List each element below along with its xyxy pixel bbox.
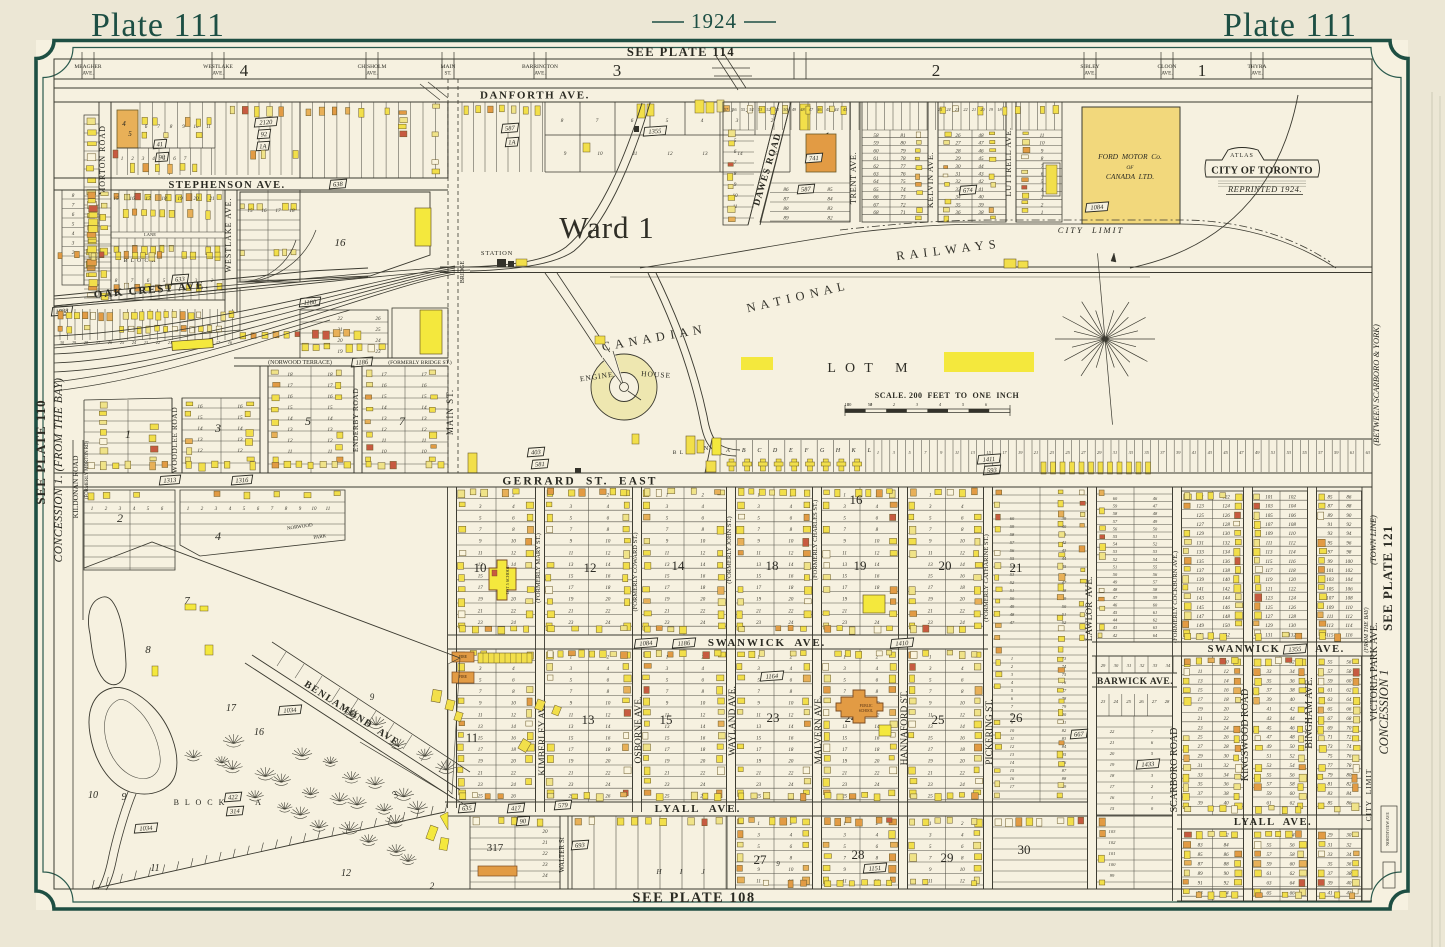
- svg-text:11: 11: [928, 880, 933, 885]
- svg-text:FIRE: FIRE: [459, 675, 468, 679]
- svg-text:10: 10: [511, 540, 517, 545]
- svg-text:73: 73: [900, 195, 906, 201]
- svg-text:19: 19: [478, 760, 484, 765]
- svg-text:19: 19: [665, 760, 671, 765]
- svg-text:7: 7: [399, 414, 406, 428]
- svg-text:21: 21: [665, 771, 670, 776]
- svg-text:(FORMERLY MARY ST.): (FORMERLY MARY ST.): [535, 533, 542, 603]
- svg-text:417: 417: [511, 805, 522, 813]
- svg-text:19: 19: [756, 760, 762, 765]
- svg-text:21: 21: [568, 609, 573, 614]
- svg-text:ST.: ST.: [445, 71, 452, 77]
- svg-text:667: 667: [1074, 731, 1085, 739]
- svg-text:9: 9: [370, 692, 375, 702]
- svg-text:5: 5: [163, 156, 166, 162]
- svg-text:112: 112: [1289, 541, 1297, 546]
- svg-text:22: 22: [605, 609, 611, 614]
- svg-text:118: 118: [1289, 569, 1297, 574]
- svg-text:20: 20: [193, 196, 199, 202]
- svg-text:29: 29: [941, 850, 954, 865]
- svg-text:91: 91: [1328, 523, 1333, 528]
- svg-text:6: 6: [173, 156, 176, 162]
- svg-text:38: 38: [1290, 689, 1296, 694]
- svg-text:30: 30: [955, 164, 961, 170]
- svg-text:24: 24: [700, 621, 706, 626]
- svg-text:SCALE. 200 FEET TO ONE INC: SCALE. 200 FEET TO ONE INCH: [875, 391, 1020, 400]
- svg-text:26: 26: [1224, 736, 1230, 741]
- svg-text:35: 35: [1267, 679, 1273, 684]
- svg-text:51: 51: [775, 107, 779, 112]
- svg-text:1: 1: [1151, 795, 1153, 800]
- svg-text:66: 66: [873, 195, 879, 201]
- svg-text:1: 1: [929, 493, 932, 498]
- svg-text:65: 65: [873, 187, 879, 193]
- svg-text:14: 14: [788, 563, 794, 568]
- svg-text:17: 17: [928, 586, 934, 591]
- svg-text:12: 12: [605, 713, 611, 718]
- svg-text:19: 19: [928, 760, 934, 765]
- svg-text:31: 31: [1198, 764, 1203, 769]
- svg-text:55: 55: [1267, 773, 1273, 778]
- svg-text:(FROM THE BAY): (FROM THE BAY): [1363, 607, 1370, 652]
- svg-text:32: 32: [1140, 663, 1145, 668]
- svg-text:126: 126: [1222, 514, 1230, 519]
- svg-text:38: 38: [1224, 792, 1230, 797]
- svg-text:27: 27: [754, 852, 768, 867]
- svg-text:22: 22: [963, 107, 967, 112]
- svg-text:8: 8: [72, 193, 75, 199]
- svg-text:56: 56: [1346, 661, 1352, 666]
- svg-text:37: 37: [1267, 689, 1273, 694]
- svg-text:16: 16: [237, 404, 243, 410]
- svg-text:31: 31: [1328, 843, 1333, 848]
- svg-text:70: 70: [1346, 726, 1352, 731]
- svg-text:AVE.: AVE.: [1315, 644, 1344, 655]
- svg-text:20: 20: [511, 760, 517, 765]
- svg-text:124: 124: [1222, 505, 1230, 510]
- svg-text:62: 62: [873, 164, 879, 170]
- svg-text:16: 16: [788, 737, 794, 742]
- svg-text:2120: 2120: [259, 119, 273, 127]
- svg-text:15: 15: [327, 405, 333, 411]
- svg-text:17: 17: [478, 748, 484, 753]
- svg-text:25: 25: [1126, 699, 1131, 704]
- svg-text:16: 16: [960, 737, 966, 742]
- svg-text:674: 674: [963, 187, 974, 195]
- svg-text:14: 14: [1224, 679, 1230, 684]
- svg-text:16: 16: [327, 394, 333, 400]
- svg-text:83: 83: [1328, 792, 1334, 797]
- svg-text:89: 89: [783, 216, 789, 222]
- svg-text:Plate 111: Plate 111: [91, 7, 225, 44]
- svg-text:35: 35: [955, 202, 961, 208]
- svg-text:112: 112: [1345, 615, 1353, 620]
- svg-text:22: 22: [542, 851, 548, 857]
- svg-text:80: 80: [1346, 773, 1352, 778]
- svg-text:CITY LIMIT: CITY LIMIT: [1058, 225, 1124, 235]
- svg-text:14: 14: [874, 563, 880, 568]
- svg-text:91: 91: [1198, 882, 1203, 887]
- svg-text:58: 58: [873, 133, 879, 139]
- svg-text:12: 12: [960, 713, 966, 718]
- svg-text:43: 43: [843, 107, 847, 112]
- svg-text:103: 103: [1265, 505, 1273, 510]
- svg-text:LYALL AVE.: LYALL AVE.: [655, 803, 742, 815]
- svg-text:7: 7: [596, 118, 599, 124]
- svg-text:80: 80: [900, 141, 906, 147]
- svg-text:63: 63: [1328, 698, 1334, 703]
- svg-text:26: 26: [375, 316, 381, 322]
- svg-text:26: 26: [605, 795, 611, 800]
- svg-text:22: 22: [788, 609, 794, 614]
- svg-text:47: 47: [978, 140, 984, 147]
- svg-text:108: 108: [1288, 523, 1296, 528]
- svg-text:18: 18: [605, 586, 611, 591]
- svg-text:13: 13: [478, 725, 484, 730]
- svg-text:63: 63: [873, 172, 879, 178]
- svg-text:19: 19: [478, 598, 484, 603]
- svg-text:60: 60: [1346, 679, 1352, 684]
- svg-text:KELVIN AVE.: KELVIN AVE.: [925, 152, 935, 209]
- svg-text:60: 60: [873, 148, 879, 154]
- svg-text:59: 59: [873, 141, 879, 147]
- svg-text:11: 11: [756, 551, 761, 556]
- svg-text:24: 24: [375, 337, 381, 344]
- svg-text:MAIN: MAIN: [441, 64, 456, 70]
- svg-text:15: 15: [842, 737, 848, 742]
- svg-text:59: 59: [1267, 863, 1273, 868]
- svg-text:61: 61: [1153, 610, 1157, 615]
- svg-text:48: 48: [978, 132, 984, 139]
- svg-text:62: 62: [1290, 802, 1296, 807]
- svg-text:6: 6: [145, 124, 148, 130]
- svg-text:12: 12: [874, 551, 880, 556]
- svg-text:14: 14: [327, 415, 333, 422]
- svg-text:85: 85: [1328, 802, 1334, 807]
- svg-text:17: 17: [756, 748, 762, 753]
- svg-text:41: 41: [1192, 450, 1196, 455]
- svg-text:7: 7: [184, 156, 187, 162]
- svg-text:11: 11: [1198, 670, 1203, 675]
- svg-text:19: 19: [1198, 708, 1204, 713]
- svg-text:18: 18: [766, 558, 779, 573]
- svg-text:44: 44: [978, 163, 984, 170]
- svg-text:58: 58: [1290, 853, 1296, 858]
- svg-text:14: 14: [788, 725, 794, 730]
- svg-text:15: 15: [756, 737, 762, 742]
- svg-text:17: 17: [568, 586, 574, 591]
- svg-text:109: 109: [1326, 606, 1334, 611]
- svg-text:9: 9: [182, 124, 185, 130]
- svg-text:71: 71: [900, 210, 906, 216]
- svg-text:89: 89: [1328, 514, 1334, 519]
- svg-text:62: 62: [1290, 872, 1296, 877]
- svg-text:13: 13: [756, 563, 762, 568]
- svg-text:59: 59: [1267, 792, 1273, 797]
- svg-text:4: 4: [215, 529, 221, 543]
- svg-text:22: 22: [1110, 729, 1115, 734]
- svg-text:1: 1: [666, 493, 669, 498]
- svg-text:2: 2: [932, 61, 941, 80]
- svg-text:14: 14: [960, 725, 966, 730]
- svg-text:117: 117: [1265, 569, 1273, 574]
- svg-text:14: 14: [672, 558, 686, 573]
- svg-text:10: 10: [960, 702, 966, 707]
- svg-text:24: 24: [1224, 726, 1230, 731]
- svg-text:43: 43: [978, 171, 984, 178]
- svg-text:67: 67: [1328, 717, 1334, 722]
- svg-text:1410: 1410: [895, 640, 909, 648]
- svg-text:24: 24: [788, 783, 794, 788]
- svg-text:1034: 1034: [139, 825, 153, 833]
- svg-text:52: 52: [766, 107, 770, 112]
- svg-text:18: 18: [788, 748, 794, 753]
- svg-text:13: 13: [582, 712, 595, 727]
- svg-text:23: 23: [542, 862, 548, 868]
- svg-text:15: 15: [1198, 689, 1204, 694]
- svg-text:(FORMERLY CHARLES ST.): (FORMERLY CHARLES ST.): [812, 500, 819, 580]
- svg-text:581: 581: [535, 461, 545, 469]
- svg-text:1: 1: [757, 822, 760, 827]
- svg-text:147: 147: [1196, 615, 1204, 620]
- svg-text:13: 13: [197, 437, 203, 443]
- svg-text:83: 83: [827, 206, 833, 212]
- svg-text:15: 15: [478, 737, 484, 742]
- svg-text:1411: 1411: [982, 456, 995, 464]
- svg-text:100: 100: [845, 402, 853, 407]
- svg-text:19: 19: [337, 349, 343, 355]
- svg-text:17: 17: [1110, 784, 1115, 789]
- svg-text:84: 84: [1346, 792, 1352, 797]
- svg-text:32: 32: [1346, 843, 1352, 848]
- svg-text:LUTTRELL AVE.: LUTTRELL AVE.: [1003, 127, 1013, 196]
- svg-text:85: 85: [1328, 495, 1334, 500]
- svg-text:49: 49: [1267, 745, 1273, 750]
- svg-text:16: 16: [511, 737, 517, 742]
- svg-text:17: 17: [327, 383, 333, 389]
- svg-text:MEAGHER: MEAGHER: [74, 64, 102, 70]
- svg-text:41: 41: [156, 141, 163, 148]
- svg-text:13: 13: [702, 151, 708, 157]
- svg-text:21: 21: [928, 771, 933, 776]
- svg-text:29: 29: [1198, 755, 1204, 760]
- svg-text:1186: 1186: [355, 359, 369, 367]
- svg-text:79: 79: [1328, 773, 1334, 778]
- svg-text:15: 15: [421, 394, 427, 400]
- svg-text:23: 23: [1198, 726, 1204, 731]
- svg-text:123: 123: [1196, 505, 1204, 510]
- svg-text:132: 132: [1222, 541, 1230, 546]
- svg-text:MORTON ROAD: MORTON ROAD: [98, 125, 107, 195]
- svg-text:13: 13: [842, 563, 848, 568]
- svg-text:52: 52: [1290, 755, 1296, 760]
- svg-text:38: 38: [978, 210, 984, 216]
- svg-text:92: 92: [1224, 882, 1230, 887]
- svg-text:67: 67: [873, 202, 879, 208]
- svg-text:29: 29: [1101, 663, 1106, 668]
- svg-text:18: 18: [327, 372, 333, 378]
- svg-text:96: 96: [1346, 541, 1352, 546]
- svg-text:24: 24: [605, 783, 611, 788]
- svg-text:142: 142: [1222, 587, 1230, 592]
- svg-text:21: 21: [756, 771, 761, 776]
- svg-text:13: 13: [928, 563, 934, 568]
- svg-text:13: 13: [842, 725, 848, 730]
- svg-text:11: 11: [382, 438, 387, 444]
- svg-text:HANNAFORD ST.: HANNAFORD ST.: [900, 691, 910, 766]
- svg-text:41: 41: [1267, 708, 1272, 713]
- svg-text:61: 61: [1267, 872, 1272, 877]
- svg-text:22: 22: [960, 609, 966, 614]
- svg-text:17: 17: [665, 748, 671, 753]
- svg-text:12: 12: [511, 713, 517, 718]
- svg-text:14: 14: [960, 563, 966, 568]
- svg-text:15: 15: [247, 208, 253, 214]
- svg-text:1: 1: [929, 822, 932, 827]
- svg-text:317: 317: [487, 842, 504, 854]
- svg-text:61: 61: [873, 156, 879, 162]
- svg-text:149: 149: [1196, 624, 1204, 629]
- svg-text:741: 741: [809, 155, 819, 163]
- svg-text:12: 12: [700, 713, 706, 718]
- svg-text:24: 24: [700, 783, 706, 788]
- svg-text:12: 12: [960, 880, 966, 885]
- svg-text:23: 23: [478, 783, 484, 788]
- svg-text:LYALL AVE.: LYALL AVE.: [1234, 817, 1312, 828]
- svg-text:24: 24: [946, 107, 950, 112]
- svg-text:54: 54: [749, 107, 753, 112]
- svg-text:3: 3: [72, 241, 75, 247]
- svg-text:17: 17: [145, 196, 151, 202]
- svg-text:17: 17: [275, 208, 281, 214]
- svg-text:18: 18: [700, 748, 706, 753]
- svg-text:LANE: LANE: [144, 232, 156, 237]
- svg-text:NORTHVIEW AVE: NORTHVIEW AVE: [1385, 812, 1390, 846]
- svg-text:10: 10: [788, 540, 794, 545]
- svg-text:(FORMERLY MORTON RD): (FORMERLY MORTON RD): [85, 441, 90, 500]
- svg-text:128: 128: [1222, 523, 1230, 528]
- svg-text:1: 1: [1198, 61, 1207, 80]
- svg-text:23: 23: [1101, 699, 1106, 704]
- svg-text:16: 16: [129, 196, 135, 202]
- svg-text:65: 65: [1267, 891, 1273, 896]
- svg-text:WOODLEE ROAD: WOODLEE ROAD: [170, 407, 179, 473]
- svg-text:24: 24: [605, 621, 611, 626]
- svg-text:1: 1: [1011, 656, 1013, 661]
- svg-text:51: 51: [1010, 588, 1014, 593]
- svg-text:37: 37: [1328, 872, 1334, 877]
- svg-text:102: 102: [1288, 495, 1296, 500]
- svg-text:37: 37: [1198, 792, 1204, 797]
- svg-text:57: 57: [1267, 853, 1273, 858]
- svg-text:25: 25: [120, 340, 124, 345]
- svg-text:16: 16: [700, 737, 706, 742]
- svg-text:113: 113: [1265, 551, 1273, 556]
- svg-text:15: 15: [842, 575, 848, 580]
- svg-text:5: 5: [305, 414, 311, 428]
- svg-text:1: 1: [929, 655, 932, 660]
- svg-text:1A: 1A: [259, 143, 267, 150]
- svg-text:25: 25: [928, 795, 934, 800]
- svg-text:24: 24: [132, 340, 136, 345]
- svg-text:17: 17: [842, 586, 848, 591]
- svg-text:21: 21: [842, 609, 847, 614]
- svg-text:13: 13: [287, 427, 293, 433]
- svg-text:47: 47: [1267, 736, 1273, 741]
- svg-text:137: 137: [1196, 569, 1204, 574]
- svg-text:85: 85: [827, 187, 833, 193]
- svg-text:126: 126: [1288, 606, 1296, 611]
- svg-text:17: 17: [226, 703, 237, 714]
- svg-text:74: 74: [1346, 745, 1352, 750]
- svg-text:21: 21: [1198, 717, 1203, 722]
- svg-text:OF: OF: [1126, 165, 1134, 171]
- svg-text:19: 19: [568, 760, 574, 765]
- svg-text:1164: 1164: [765, 673, 779, 681]
- svg-text:16: 16: [850, 492, 864, 507]
- svg-text:84: 84: [1224, 843, 1230, 848]
- svg-text:2: 2: [131, 156, 134, 162]
- svg-text:F: F: [804, 448, 809, 454]
- svg-text:4: 4: [122, 120, 126, 128]
- svg-text:99: 99: [1328, 560, 1334, 565]
- svg-text:8: 8: [561, 118, 564, 124]
- svg-text:103: 103: [1109, 829, 1117, 834]
- svg-text:L: L: [867, 448, 872, 454]
- svg-text:32: 32: [1224, 764, 1230, 769]
- svg-text:10: 10: [960, 868, 966, 873]
- svg-text:100: 100: [1109, 862, 1117, 867]
- svg-text:127: 127: [1265, 615, 1273, 620]
- svg-text:100: 100: [1345, 560, 1353, 565]
- svg-text:10: 10: [605, 540, 611, 545]
- svg-text:15: 15: [665, 737, 671, 742]
- svg-text:101: 101: [1326, 569, 1334, 574]
- svg-text:114: 114: [1289, 551, 1297, 556]
- svg-text:11: 11: [326, 507, 331, 512]
- svg-text:11: 11: [478, 713, 483, 718]
- svg-text:93: 93: [1328, 532, 1334, 537]
- svg-text:54: 54: [1290, 764, 1296, 769]
- svg-text:25: 25: [375, 327, 381, 333]
- svg-text:N: N: [704, 445, 709, 452]
- svg-text:20: 20: [337, 338, 343, 344]
- svg-text:8: 8: [734, 171, 737, 177]
- svg-text:20: 20: [605, 598, 611, 603]
- svg-text:22: 22: [605, 771, 611, 776]
- svg-text:59: 59: [1328, 679, 1334, 684]
- svg-text:21: 21: [568, 771, 573, 776]
- svg-text:31: 31: [1113, 450, 1117, 455]
- svg-text:16: 16: [197, 404, 203, 410]
- svg-text:86: 86: [1224, 853, 1230, 858]
- svg-text:39: 39: [978, 202, 984, 208]
- svg-text:53: 53: [1267, 764, 1273, 769]
- svg-text:BRIDGE: BRIDGE: [460, 261, 466, 284]
- svg-text:SEE PLATE 110: SEE PLATE 110: [33, 399, 48, 504]
- svg-text:11: 11: [955, 450, 959, 455]
- svg-text:44: 44: [1290, 717, 1296, 722]
- svg-text:11: 11: [842, 551, 847, 556]
- svg-text:22: 22: [156, 340, 160, 345]
- svg-text:98: 98: [1346, 551, 1352, 556]
- svg-text:21: 21: [842, 771, 847, 776]
- svg-text:43: 43: [1267, 717, 1273, 722]
- svg-text:5: 5: [128, 130, 132, 138]
- svg-text:19: 19: [665, 598, 671, 603]
- svg-text:1186: 1186: [677, 640, 691, 648]
- svg-text:30: 30: [1018, 842, 1031, 857]
